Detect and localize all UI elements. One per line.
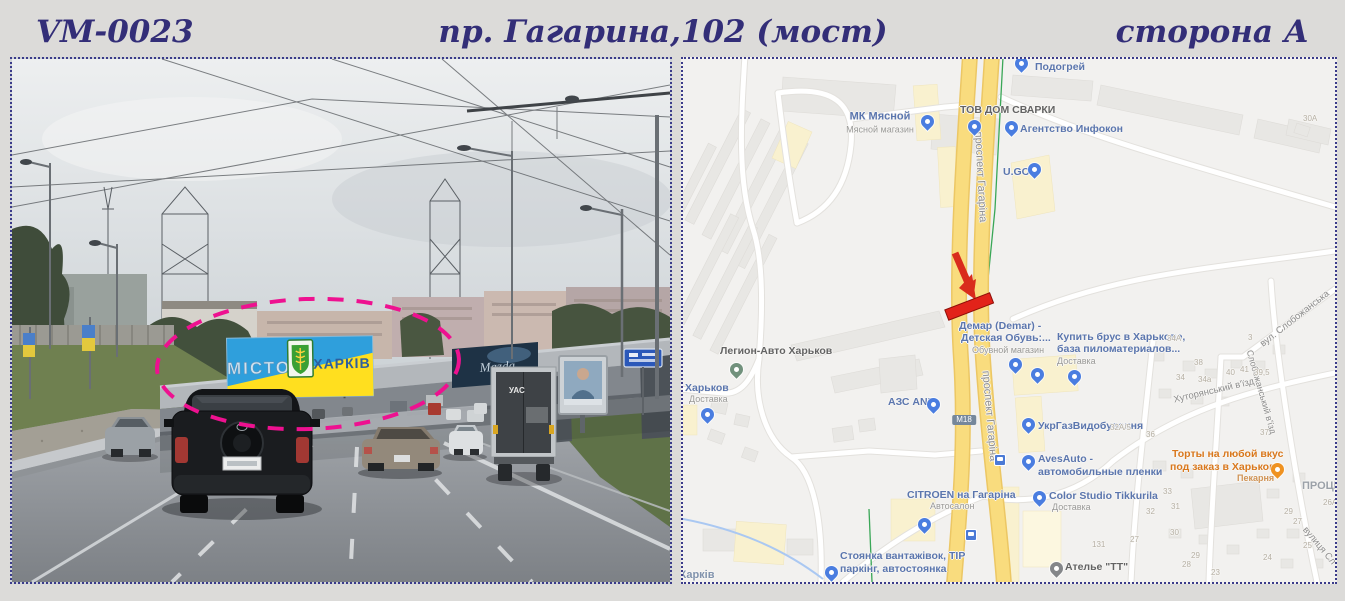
map-pin-icon [915, 515, 933, 533]
house-number: 23 [1211, 569, 1220, 577]
map-labels-layer: МК МяснойМясной магазинТОВ ДОМ СВАРКИПод… [683, 59, 1335, 582]
house-number: 31 [1171, 503, 1180, 511]
map-label: Доставка [1052, 503, 1091, 512]
map-pin-icon [698, 405, 716, 423]
header: VM-0023 пр. Гагарина,102 (мост) сторона … [0, 0, 1345, 56]
house-number: 34а [1198, 376, 1211, 384]
transit-stop-icon [965, 529, 977, 541]
house-number: 30 [1170, 529, 1179, 537]
house-number: 39,5 [1254, 369, 1270, 377]
map-label: Доставка [1057, 357, 1096, 366]
house-number: 40 [1226, 369, 1235, 377]
map-pin-icon [1002, 118, 1020, 136]
map-pin-icon [1012, 57, 1030, 73]
map-label: Обувной магазин [972, 346, 1044, 355]
street-photo-panel: МІСТО ХАРКІВ Mazda [10, 57, 672, 584]
map-pin-icon [1047, 559, 1065, 577]
board-side: сторона А [1116, 14, 1309, 50]
house-number: 28 [1182, 561, 1191, 569]
house-number: 32 [1146, 508, 1155, 516]
transit-stop-icon [994, 454, 1006, 466]
house-number: 29 [1191, 552, 1200, 560]
house-number: 34 [1176, 374, 1185, 382]
house-number: 38 [1194, 359, 1203, 367]
house-number: 32А/5 [1110, 424, 1131, 432]
house-number: 25 [1303, 542, 1312, 550]
map-label: паркінг, автостоянка [840, 564, 947, 575]
map-label: Детская Обувь:... [961, 333, 1051, 344]
map-pin-icon [1065, 367, 1083, 385]
map-label: Легион-Авто Харьков [720, 346, 832, 357]
street-photo: МІСТО ХАРКІВ Mazda [12, 59, 670, 582]
house-number: 3 [1248, 334, 1252, 342]
house-number: 34А [1167, 335, 1181, 343]
house-number: 41 [1240, 366, 1249, 374]
map-label: Автосалон [930, 502, 974, 511]
black-suv [162, 389, 322, 520]
route-shield: M18 [952, 415, 976, 425]
house-number: 30А [1303, 115, 1317, 123]
cloud [42, 97, 342, 181]
house-number: 27 [1293, 518, 1302, 526]
map-pin-icon [1030, 488, 1048, 506]
map-pin-icon [1006, 355, 1024, 373]
location-map-panel: МК МяснойМясной магазинТОВ ДОМ СВАРКИПод… [681, 57, 1337, 584]
map-label: автомобильные пленки [1038, 467, 1162, 478]
kharkiv-coat-of-arms-icon [288, 340, 314, 377]
map-label: проспект Гагаріна [972, 131, 988, 222]
map-label: проспект Гагаріна [980, 370, 999, 462]
map-pin-icon [1019, 452, 1037, 470]
map-pin-icon [822, 563, 840, 581]
board-address: пр. Гагарина,102 (мост) [438, 14, 887, 50]
map-label: CITROEN на Гагаріна [907, 490, 1016, 501]
map-label: Торты на любой вкус [1172, 449, 1283, 460]
board-code: VM-0023 [36, 14, 194, 50]
map-pin-icon [727, 360, 745, 378]
map-pin-icon [1028, 365, 1046, 383]
map-label: Хуторянський в'їзд [1173, 377, 1255, 405]
map-label: U.GO [1003, 167, 1030, 178]
map-label: Color Studio Tikkurila [1049, 491, 1158, 502]
house-number: 36 [1146, 431, 1155, 439]
house-number: 37 [1260, 429, 1269, 437]
map-label: вул. Слобожанська [1259, 289, 1332, 349]
map-label: Доставка [689, 395, 728, 404]
map-label: под заказ в Харькове [1170, 462, 1281, 473]
house-number: 26А [1323, 499, 1337, 507]
map-label: Ателье "ТТ" [1065, 562, 1128, 573]
map-label: Демар (Demar) - [959, 321, 1041, 332]
map-label: Агентство Инфокон [1020, 124, 1123, 135]
map-pin-icon [918, 112, 936, 130]
map-label: Мясной магазин [846, 126, 914, 135]
map-label: Стоянка вантажівок, TIP [840, 551, 965, 562]
billboard-text-left: МІСТО [227, 358, 291, 378]
map-label: база пиломатериалов... [1057, 344, 1180, 355]
map-label: Слобожанський в'їзд [1245, 349, 1278, 435]
map-label: AvesAuto - [1038, 454, 1093, 465]
map-pin-icon [1019, 415, 1037, 433]
map-label: ТОВ ДОМ СВАРКИ [960, 105, 1055, 116]
map-label: ПРОЦЕ [1302, 481, 1337, 492]
map-label: Харьков [685, 383, 729, 394]
cloud [332, 151, 670, 247]
house-number: 24 [1263, 554, 1272, 562]
map-label: МК Мясной [850, 112, 911, 123]
house-number: 29 [1284, 508, 1293, 516]
house-number: 131 [1092, 541, 1105, 549]
house-number: 33 [1163, 488, 1172, 496]
map-label: Харків [681, 570, 715, 581]
billboard-text-right: ХАРКІВ [313, 355, 371, 372]
truck-text: УАС [509, 386, 525, 395]
map-label: Пекарня [1237, 474, 1274, 483]
house-number: 27 [1130, 536, 1139, 544]
map-label: Подогрей [1035, 62, 1085, 73]
